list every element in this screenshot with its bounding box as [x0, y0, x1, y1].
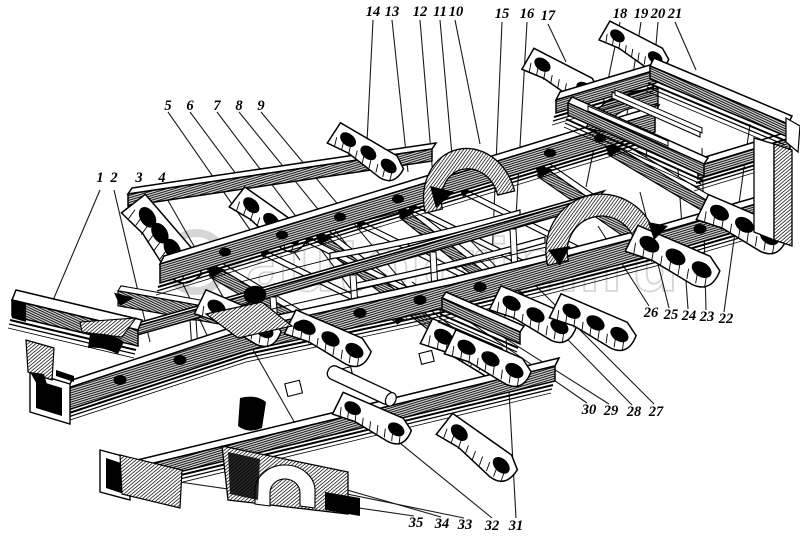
svg-text:5: 5 [164, 98, 171, 114]
svg-text:32: 32 [484, 518, 500, 534]
svg-text:17: 17 [541, 8, 556, 24]
svg-text:2: 2 [109, 170, 117, 186]
svg-text:30: 30 [581, 402, 597, 418]
svg-text:34: 34 [434, 516, 450, 532]
svg-text:21: 21 [667, 6, 683, 22]
svg-text:18: 18 [613, 6, 628, 22]
svg-text:11: 11 [433, 4, 447, 20]
svg-text:20: 20 [650, 6, 666, 22]
svg-text:19: 19 [634, 6, 649, 22]
svg-text:14: 14 [366, 4, 381, 20]
svg-text:1: 1 [96, 170, 103, 186]
svg-text:29: 29 [603, 403, 619, 419]
svg-text:28: 28 [626, 404, 642, 420]
svg-text:23: 23 [699, 309, 715, 325]
svg-text:25: 25 [663, 307, 679, 323]
svg-text:26: 26 [643, 305, 659, 321]
svg-text:9: 9 [257, 98, 264, 114]
svg-text:35: 35 [408, 515, 424, 531]
svg-text:16: 16 [520, 6, 535, 22]
svg-text:31: 31 [508, 518, 524, 534]
svg-text:24: 24 [681, 308, 697, 324]
svg-text:22: 22 [718, 311, 734, 327]
svg-text:6: 6 [186, 98, 194, 114]
svg-text:7: 7 [213, 98, 221, 114]
svg-text:10: 10 [449, 4, 464, 20]
svg-text:15: 15 [495, 6, 510, 22]
svg-text:27: 27 [648, 404, 664, 420]
svg-text:12: 12 [413, 4, 428, 20]
svg-text:13: 13 [385, 4, 400, 20]
svg-text:8: 8 [235, 98, 243, 114]
svg-text:3: 3 [134, 170, 142, 186]
svg-text:33: 33 [457, 517, 473, 533]
